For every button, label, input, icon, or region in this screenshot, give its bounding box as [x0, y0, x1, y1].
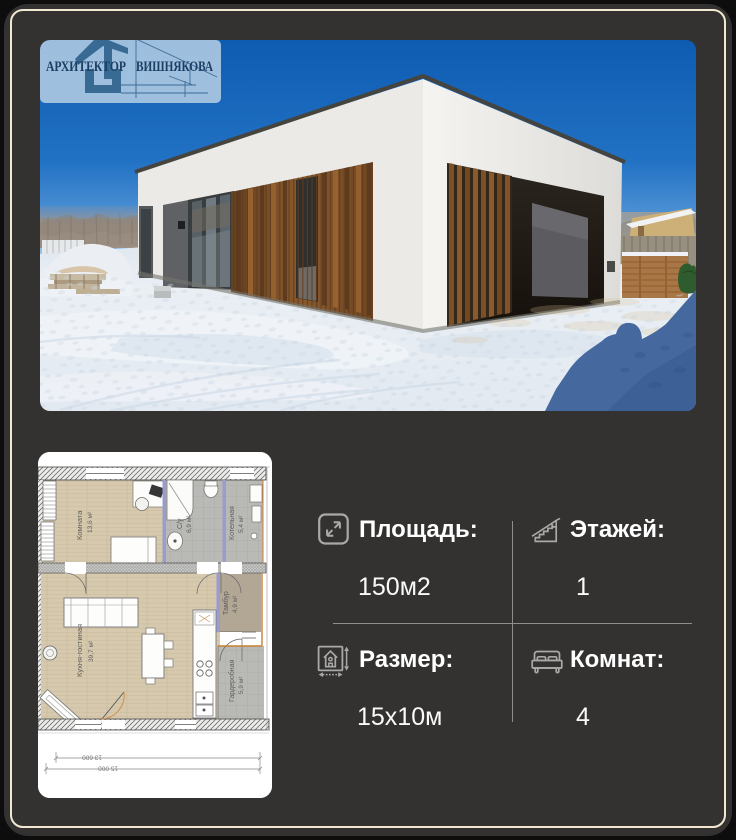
svg-text:Котельная: Котельная: [229, 506, 236, 540]
svg-text:5,9 м²: 5,9 м²: [238, 676, 245, 694]
svg-text:АРХИТЕКТОР: АРХИТЕКТОР: [46, 59, 126, 75]
svg-text:Комната: Комната: [75, 510, 84, 540]
svg-text:13 600: 13 600: [82, 754, 102, 761]
svg-text:Тамбур: Тамбур: [222, 591, 230, 615]
svg-text:С/у: С/у: [177, 518, 184, 529]
svg-text:5,4 м²: 5,4 м²: [238, 515, 245, 533]
svg-text:13,6 м²: 13,6 м²: [87, 511, 94, 533]
svg-text:15 000: 15 000: [98, 765, 118, 772]
svg-text:6,9 м²: 6,9 м²: [186, 515, 193, 533]
svg-text:Гардеробная: Гардеробная: [228, 659, 236, 702]
svg-text:Кухня-гостиная: Кухня-гостиная: [75, 624, 84, 677]
svg-text:ВИШНЯКОВА: ВИШНЯКОВА: [136, 59, 213, 75]
svg-text:39,7 м²: 39,7 м²: [88, 640, 95, 662]
svg-text:4,9 м²: 4,9 м²: [232, 595, 239, 613]
